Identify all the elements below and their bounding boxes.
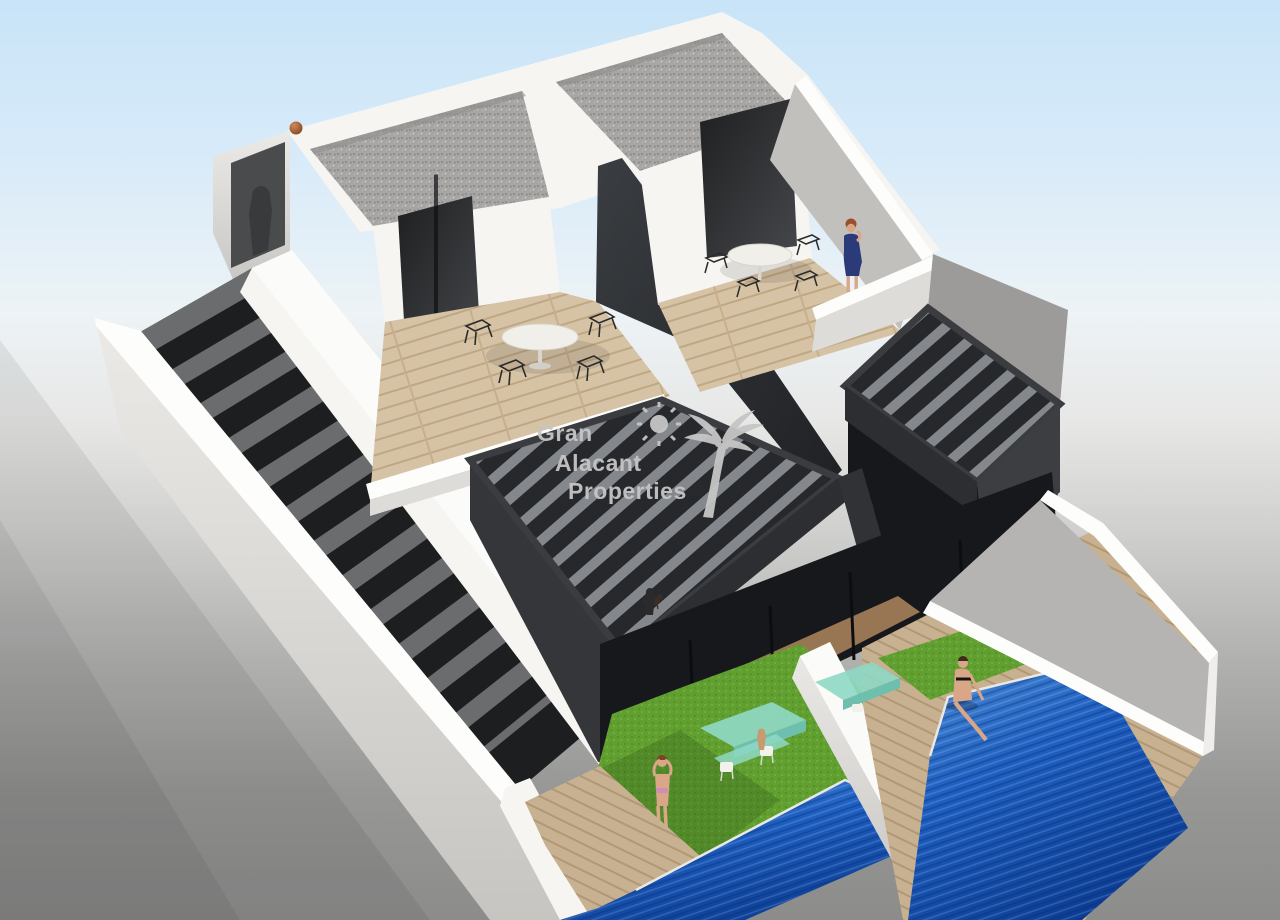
watermark-line-2: Alacant (555, 450, 642, 476)
villa-render-svg: Gran Alacant Properties (0, 0, 1280, 920)
table-base (529, 363, 551, 370)
render-image: Gran Alacant Properties (0, 0, 1280, 920)
round-table-right (728, 244, 792, 266)
door-mullion (434, 174, 438, 314)
watermark-line-3: Properties (568, 478, 687, 504)
watermark-line-1: Gran (537, 420, 593, 446)
ball-on-parapet (290, 122, 303, 135)
round-table-left (502, 324, 578, 350)
